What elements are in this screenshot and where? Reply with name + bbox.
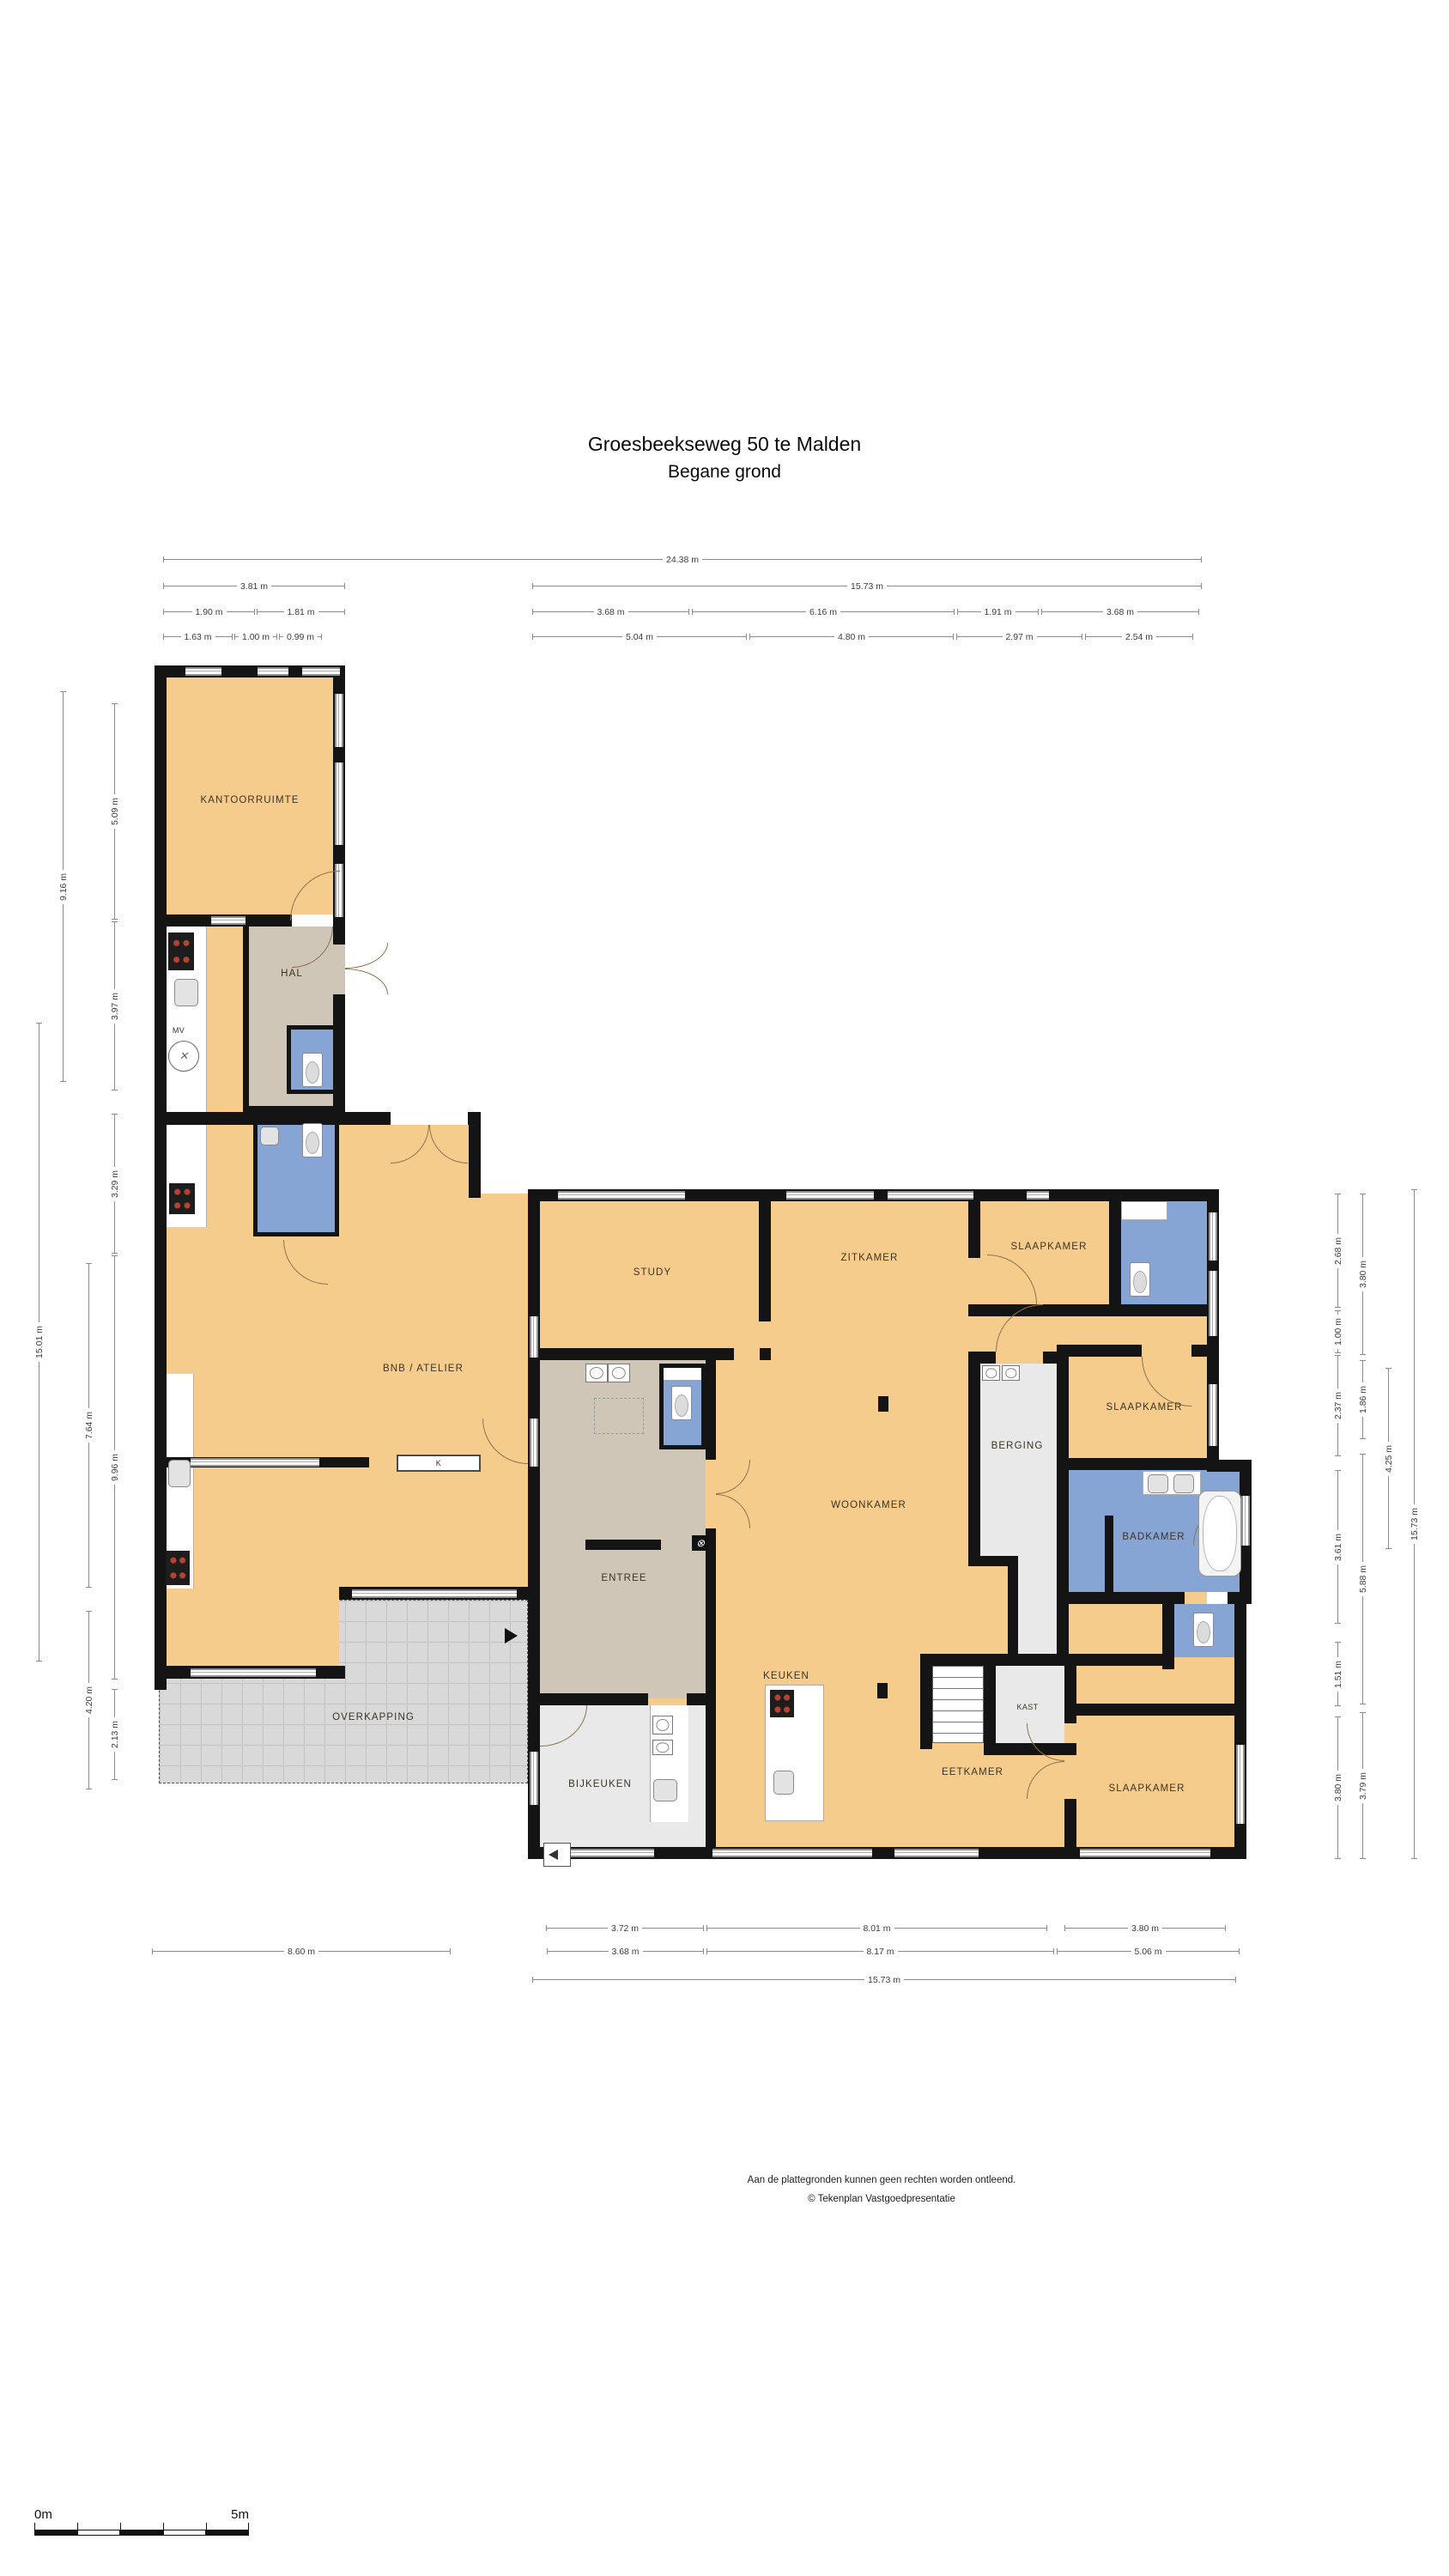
dimension-tick bbox=[112, 1090, 118, 1091]
scale-end-label: 5m bbox=[231, 2507, 249, 2522]
dimension-tick bbox=[692, 609, 693, 615]
dimension-label: 1.51 m bbox=[1333, 1656, 1343, 1691]
room-label-hal: HAL bbox=[281, 969, 303, 979]
kitchen-counter bbox=[163, 927, 206, 1227]
scale-segment bbox=[34, 2530, 77, 2536]
room-label-zitkamer: ZITKAMER bbox=[841, 1253, 899, 1263]
wall bbox=[706, 1360, 716, 1460]
dimension-top_rows-0-0: 24.38 m bbox=[163, 559, 1202, 560]
dryer-icon bbox=[608, 1364, 630, 1382]
sink-icon bbox=[653, 1779, 677, 1801]
wall bbox=[1064, 1666, 1076, 1704]
room-label-bnb-atelier: BNB / ATELIER bbox=[383, 1364, 464, 1374]
dimension-bottom_rows-1-2: 8.17 m bbox=[706, 1951, 1054, 1952]
dimension-tick bbox=[532, 634, 533, 640]
dimension-tick bbox=[954, 609, 955, 615]
dimension-tick bbox=[1360, 1360, 1366, 1361]
dimension-left_cols-2-0: 7.64 m bbox=[88, 1263, 89, 1588]
window bbox=[1080, 1849, 1210, 1857]
room-bnb-lower bbox=[160, 1587, 339, 1666]
scale-tick bbox=[163, 2523, 164, 2530]
dimension-label: 3.80 m bbox=[1358, 1257, 1368, 1291]
window bbox=[530, 1419, 538, 1467]
dimension-tick bbox=[257, 609, 258, 615]
dimension-tick bbox=[60, 691, 66, 692]
wall bbox=[920, 1654, 932, 1749]
window bbox=[560, 1849, 654, 1857]
dimension-left_cols-2-1: 4.20 m bbox=[88, 1611, 89, 1789]
dimension-tick bbox=[1335, 1716, 1341, 1717]
dimension-label: 3.79 m bbox=[1358, 1768, 1368, 1802]
appliance-icon bbox=[652, 1716, 673, 1735]
scale-segment bbox=[206, 2530, 249, 2536]
dimension-tick bbox=[112, 919, 118, 920]
counter-edge bbox=[206, 927, 207, 1227]
scale-tick bbox=[77, 2523, 78, 2530]
disclaimer-line-1: Aan de plattegronden kunnen geen rechten… bbox=[748, 2171, 1016, 2190]
dimension-label: 7.64 m bbox=[84, 1408, 94, 1443]
wall bbox=[706, 1528, 716, 1847]
dimension-left_cols-0-0: 15.01 m bbox=[39, 1023, 39, 1662]
wall bbox=[155, 665, 167, 1690]
wall bbox=[1064, 1799, 1076, 1847]
wall bbox=[760, 1348, 771, 1360]
dimension-right_cols-0-4: 1.51 m bbox=[1337, 1642, 1338, 1706]
dimension-right_cols-0-2: 2.37 m bbox=[1337, 1355, 1338, 1456]
dimension-top_rows-3-4: 4.80 m bbox=[749, 636, 954, 637]
dimension-tick bbox=[112, 1255, 118, 1256]
dimension-bottom_rows-2-0: 15.73 m bbox=[532, 1979, 1236, 1980]
wall bbox=[968, 1201, 980, 1258]
door-arc bbox=[345, 943, 388, 969]
dimension-top_rows-3-0: 1.63 m bbox=[163, 636, 233, 637]
appliance-icon bbox=[982, 1365, 1000, 1381]
dimension-right_cols-0-1: 1.00 m bbox=[1337, 1310, 1338, 1353]
dimension-tick bbox=[1082, 634, 1082, 640]
dimension-tick bbox=[276, 634, 277, 640]
window bbox=[191, 1668, 316, 1677]
pillar bbox=[877, 1683, 888, 1698]
dimension-label: 0.99 m bbox=[283, 632, 318, 642]
dimension-left_cols-3-2: 3.29 m bbox=[114, 1114, 115, 1254]
room-label-slaapkamer-3: SLAAPKAMER bbox=[1109, 1783, 1185, 1794]
dimension-tick bbox=[957, 609, 958, 615]
dimension-tick bbox=[1192, 634, 1193, 640]
dimension-right_cols-2-0: 4.25 m bbox=[1388, 1368, 1389, 1549]
dimension-right_cols-1-1: 1.86 m bbox=[1362, 1360, 1363, 1439]
dimension-label: 5.06 m bbox=[1131, 1947, 1165, 1957]
wall bbox=[759, 1201, 771, 1321]
dimension-tick bbox=[1360, 1858, 1366, 1859]
dimension-label: 24.38 m bbox=[663, 555, 702, 565]
dimension-tick bbox=[956, 634, 957, 640]
dimension-label: 3.97 m bbox=[110, 988, 120, 1023]
room-label-entree: ENTREE bbox=[601, 1573, 646, 1583]
toilet-icon bbox=[302, 1053, 323, 1087]
ventilation-fan-icon bbox=[168, 1041, 199, 1072]
wall bbox=[1064, 1704, 1246, 1716]
ceiling-light-point-icon bbox=[692, 1535, 709, 1551]
dimension-tick bbox=[163, 634, 164, 640]
dimension-label: 1.90 m bbox=[191, 607, 226, 617]
dimension-tick bbox=[1235, 1977, 1236, 1983]
dimension-tick bbox=[1225, 1925, 1226, 1931]
room-bnb-atelier bbox=[160, 1194, 528, 1587]
appliance-icon bbox=[1002, 1365, 1020, 1381]
dimension-tick bbox=[1046, 1925, 1047, 1931]
room-label-woonkamer: WOONKAMER bbox=[831, 1500, 906, 1510]
dimension-tick bbox=[1041, 609, 1042, 615]
dimension-top_rows-2-1: 1.81 m bbox=[257, 611, 345, 612]
wall bbox=[469, 1112, 481, 1198]
washer-icon bbox=[585, 1364, 608, 1382]
dimension-tick bbox=[546, 1925, 547, 1931]
dimension-top_rows-3-5: 2.97 m bbox=[956, 636, 1082, 637]
dimension-label: 4.20 m bbox=[84, 1683, 94, 1717]
scale-bar: 0m 5m bbox=[34, 2507, 249, 2537]
dimension-top_rows-2-4: 1.91 m bbox=[957, 611, 1039, 612]
dimension-right_cols-1-0: 3.80 m bbox=[1362, 1194, 1363, 1355]
dimension-top_rows-3-3: 5.04 m bbox=[532, 636, 747, 637]
dimension-tick bbox=[749, 634, 750, 640]
dimension-tick bbox=[532, 1977, 533, 1983]
room-label-mv: MV bbox=[173, 1026, 185, 1035]
dimension-tick bbox=[1411, 1189, 1417, 1190]
wall bbox=[1057, 1592, 1185, 1604]
scale-segment bbox=[120, 2530, 163, 2536]
dimension-top_rows-3-1: 1.00 m bbox=[234, 636, 277, 637]
dimension-label: 3.72 m bbox=[608, 1923, 642, 1934]
dimension-label: 5.09 m bbox=[110, 794, 120, 829]
dimension-tick bbox=[1057, 1948, 1058, 1954]
wall bbox=[968, 1357, 980, 1556]
window bbox=[185, 667, 221, 676]
cooktop-icon bbox=[169, 1183, 195, 1214]
dimension-tick bbox=[1239, 1948, 1240, 1954]
dimension-tick bbox=[706, 1925, 707, 1931]
dimension-tick bbox=[1335, 1623, 1341, 1624]
window bbox=[1027, 1191, 1049, 1200]
appliance-icon bbox=[652, 1740, 673, 1755]
dimension-label: 8.60 m bbox=[284, 1947, 318, 1957]
dimension-label: 3.81 m bbox=[237, 581, 271, 592]
window bbox=[1209, 1212, 1217, 1261]
wall bbox=[1008, 1556, 1018, 1666]
dimension-tick bbox=[36, 1661, 42, 1662]
wall bbox=[243, 927, 249, 1112]
dimension-tick bbox=[1335, 1352, 1341, 1353]
window bbox=[786, 1191, 874, 1200]
dimension-tick bbox=[86, 1789, 92, 1789]
dimension-tick bbox=[1201, 583, 1202, 589]
wall bbox=[968, 1304, 1219, 1316]
floorplan-page: Groesbeekseweg 50 te Malden Begane grond bbox=[0, 0, 1449, 2576]
disclaimer-line-2: © Tekenplan Vastgoedpresentatie bbox=[748, 2190, 1016, 2208]
dimension-tick bbox=[1360, 1712, 1366, 1713]
dimension-tick bbox=[232, 634, 233, 640]
window bbox=[335, 694, 343, 747]
dimension-bottom_rows-1-0: 8.60 m bbox=[152, 1951, 451, 1952]
shower-icon bbox=[260, 1127, 279, 1145]
dimension-top_rows-1-0: 3.81 m bbox=[163, 586, 345, 586]
counter-edge bbox=[193, 1374, 194, 1589]
dimension-tick bbox=[1053, 1948, 1054, 1954]
wall bbox=[1228, 1592, 1252, 1604]
dimension-label: 2.97 m bbox=[1002, 632, 1036, 642]
dimension-tick bbox=[60, 1081, 66, 1082]
scale-segment bbox=[77, 2530, 120, 2536]
cooktop-icon bbox=[166, 1551, 190, 1585]
dimension-label: 3.68 m bbox=[1103, 607, 1137, 617]
sink-icon bbox=[168, 1460, 191, 1487]
dimension-label: 5.04 m bbox=[622, 632, 657, 642]
dimension-label: 8.01 m bbox=[859, 1923, 894, 1934]
scale-tick bbox=[206, 2523, 207, 2530]
wall bbox=[528, 1348, 734, 1360]
dimension-label: 1.00 m bbox=[1333, 1315, 1343, 1349]
dimension-label: 6.16 m bbox=[806, 607, 840, 617]
dimension-tick bbox=[1360, 1454, 1366, 1455]
room-label-keuken: KEUKEN bbox=[763, 1671, 809, 1681]
dimension-tick bbox=[703, 1948, 704, 1954]
wall bbox=[1064, 1716, 1076, 1723]
window bbox=[712, 1849, 872, 1857]
dimension-tick bbox=[112, 1114, 118, 1115]
dimension-tick bbox=[112, 921, 118, 922]
dimension-tick bbox=[1201, 556, 1202, 562]
dimension-tick bbox=[112, 1679, 118, 1680]
dimension-top_rows-2-3: 6.16 m bbox=[692, 611, 955, 612]
window bbox=[530, 1316, 538, 1358]
dimension-tick bbox=[1360, 1438, 1366, 1439]
dimension-tick bbox=[1360, 1194, 1366, 1194]
title-block: Groesbeekseweg 50 te Malden Begane grond bbox=[0, 433, 1449, 483]
scale-segment bbox=[163, 2530, 206, 2536]
door-arc bbox=[345, 969, 388, 994]
window bbox=[894, 1849, 979, 1857]
room-berging bbox=[980, 1364, 1057, 1556]
wall bbox=[1057, 1345, 1142, 1357]
dimension-tick bbox=[1335, 1310, 1341, 1311]
dimension-tick bbox=[112, 1779, 118, 1780]
page-title: Groesbeekseweg 50 te Malden bbox=[0, 433, 1449, 456]
dimension-label: 3.29 m bbox=[110, 1166, 120, 1200]
dimension-label: 3.80 m bbox=[1333, 1771, 1343, 1805]
scale-tick bbox=[34, 2523, 35, 2530]
room-label-eetkamer: EETKAMER bbox=[942, 1767, 1003, 1777]
dimension-top_rows-2-2: 3.68 m bbox=[532, 611, 689, 612]
dimension-tick bbox=[163, 583, 164, 589]
room-label-kast: KAST bbox=[1016, 1703, 1038, 1711]
wall bbox=[920, 1654, 1162, 1666]
window bbox=[302, 667, 340, 676]
room-label-kantoorruimte: KANTOORRUIMTE bbox=[200, 795, 299, 805]
dimension-label: 1.63 m bbox=[180, 632, 215, 642]
dimension-tick bbox=[746, 634, 747, 640]
toilet-icon bbox=[1193, 1613, 1214, 1647]
dimension-bottom_rows-0-0: 3.72 m bbox=[546, 1928, 704, 1929]
dimension-tick bbox=[1335, 1705, 1341, 1706]
dimension-label: 3.61 m bbox=[1333, 1529, 1343, 1564]
scale-tick bbox=[120, 2523, 121, 2530]
dimension-right_cols-0-3: 3.61 m bbox=[1337, 1470, 1338, 1624]
dimension-top_rows-2-5: 3.68 m bbox=[1041, 611, 1199, 612]
vanity-unit bbox=[1121, 1201, 1167, 1220]
sink-icon bbox=[773, 1771, 794, 1795]
room-slaapkamer-3 bbox=[1207, 1716, 1234, 1847]
sink-icon bbox=[1173, 1474, 1194, 1493]
dimension-tick bbox=[532, 609, 533, 615]
disclaimer: Aan de plattegronden kunnen geen rechten… bbox=[748, 2171, 1016, 2209]
dimension-tick bbox=[1038, 609, 1039, 615]
cooktop-icon bbox=[770, 1690, 794, 1717]
dimension-label: 4.25 m bbox=[1384, 1441, 1394, 1475]
dimension-tick bbox=[1360, 1354, 1366, 1355]
window bbox=[191, 1458, 319, 1467]
dimension-tick bbox=[1360, 1704, 1366, 1704]
dimension-tick bbox=[254, 609, 255, 615]
dimension-tick bbox=[279, 634, 280, 640]
dimension-tick bbox=[1085, 634, 1086, 640]
dimension-bottom_rows-1-1: 3.68 m bbox=[547, 1951, 704, 1952]
dimension-tick bbox=[1385, 1548, 1391, 1549]
pillar bbox=[878, 1396, 888, 1412]
dimension-tick bbox=[1064, 1925, 1065, 1931]
dimension-label: 1.86 m bbox=[1358, 1382, 1368, 1417]
window bbox=[1209, 1271, 1217, 1336]
bathtub-icon bbox=[1198, 1491, 1241, 1577]
dimension-tick bbox=[1335, 1470, 1341, 1471]
room-label-slaapkamer-2: SLAAPKAMER bbox=[1106, 1402, 1183, 1413]
room-label-slaapkamer-1: SLAAPKAMER bbox=[1011, 1242, 1088, 1252]
window bbox=[1209, 1384, 1217, 1446]
dimension-label: 15.73 m bbox=[847, 581, 887, 592]
window bbox=[258, 667, 288, 676]
wc-sink bbox=[664, 1368, 701, 1380]
dimension-tick bbox=[112, 1689, 118, 1690]
dimension-label: 2.68 m bbox=[1333, 1233, 1343, 1267]
dimension-top_rows-2-0: 1.90 m bbox=[163, 611, 255, 612]
wall bbox=[687, 1693, 716, 1705]
dimension-left_cols-1-0: 9.16 m bbox=[63, 691, 64, 1082]
window bbox=[352, 1589, 517, 1598]
dimension-tick bbox=[86, 1263, 92, 1264]
dimension-bottom_rows-1-3: 5.06 m bbox=[1057, 1951, 1240, 1952]
dimension-right_cols-3-0: 15.73 m bbox=[1414, 1189, 1415, 1859]
dimension-tick bbox=[163, 609, 164, 615]
dimension-tick bbox=[1198, 609, 1199, 615]
wall bbox=[968, 1352, 996, 1364]
dimension-tick bbox=[112, 703, 118, 704]
dimension-top_rows-3-6: 2.54 m bbox=[1085, 636, 1193, 637]
dimension-label: 3.80 m bbox=[1128, 1923, 1162, 1934]
wall bbox=[1109, 1201, 1121, 1304]
dimension-label: 15.73 m bbox=[1410, 1504, 1420, 1544]
dimension-tick bbox=[1335, 1858, 1341, 1859]
scale-start-label: 0m bbox=[34, 2507, 52, 2522]
room-label-overkapping: OVERKAPPING bbox=[332, 1712, 415, 1722]
sink-icon bbox=[1148, 1474, 1168, 1493]
dimension-label: 15.01 m bbox=[34, 1322, 45, 1362]
wall bbox=[333, 994, 345, 1124]
dimension-tick bbox=[1385, 1368, 1391, 1369]
dimension-label: 2.13 m bbox=[110, 1717, 120, 1752]
dimension-tick bbox=[706, 1948, 707, 1954]
window bbox=[335, 762, 343, 845]
staircase bbox=[932, 1666, 984, 1743]
dimension-top_rows-1-1: 15.73 m bbox=[532, 586, 1202, 586]
reserved-area-outline bbox=[594, 1398, 644, 1434]
dimension-bottom_rows-0-1: 8.01 m bbox=[706, 1928, 1047, 1929]
dimension-label: 3.68 m bbox=[608, 1947, 642, 1957]
dimension-tick bbox=[344, 609, 345, 615]
wall bbox=[585, 1540, 661, 1550]
dimension-tick bbox=[1335, 1642, 1341, 1643]
wall bbox=[155, 1112, 391, 1125]
window bbox=[888, 1191, 973, 1200]
dimension-tick bbox=[688, 609, 689, 615]
dimension-label: 1.91 m bbox=[980, 607, 1015, 617]
wall bbox=[984, 1666, 996, 1743]
dimension-tick bbox=[450, 1948, 451, 1954]
cooktop-icon bbox=[168, 933, 194, 970]
exit-door-icon bbox=[543, 1843, 571, 1867]
window bbox=[1241, 1496, 1250, 1546]
toilet-icon bbox=[671, 1386, 692, 1420]
dimension-top_rows-3-2: 0.99 m bbox=[279, 636, 322, 637]
window bbox=[1236, 1745, 1245, 1824]
dimension-left_cols-3-4: 2.13 m bbox=[114, 1689, 115, 1780]
room-label-badkamer: BADKAMER bbox=[1122, 1532, 1185, 1542]
dimension-label: 2.54 m bbox=[1122, 632, 1156, 642]
dimension-right_cols-1-3: 3.79 m bbox=[1362, 1712, 1363, 1859]
dimension-label: 8.17 m bbox=[863, 1947, 897, 1957]
window bbox=[530, 1752, 538, 1805]
toilet-icon bbox=[302, 1123, 323, 1157]
dimension-tick bbox=[1335, 1307, 1341, 1308]
dimension-label: 3.68 m bbox=[593, 607, 627, 617]
room-label-k: K bbox=[436, 1459, 441, 1467]
room-label-berging: BERGING bbox=[991, 1441, 1044, 1451]
entrance-arrow-icon bbox=[505, 1628, 518, 1643]
dimension-tick bbox=[1335, 1455, 1341, 1456]
dimension-tick bbox=[953, 634, 954, 640]
wall bbox=[1191, 1345, 1219, 1357]
wall bbox=[1057, 1458, 1219, 1470]
wall bbox=[1162, 1604, 1174, 1669]
dimension-tick bbox=[1335, 1355, 1341, 1356]
dimension-tick bbox=[86, 1611, 92, 1612]
dimension-tick bbox=[547, 1948, 548, 1954]
scale-tick bbox=[248, 2523, 249, 2530]
dimension-label: 5.88 m bbox=[1358, 1562, 1368, 1596]
room-label-study: STUDY bbox=[634, 1267, 671, 1278]
dimension-tick bbox=[234, 634, 235, 640]
dimension-tick bbox=[321, 634, 322, 640]
dimension-label: 2.37 m bbox=[1333, 1388, 1343, 1423]
dimension-left_cols-3-3: 9.96 m bbox=[114, 1255, 115, 1680]
sink-icon bbox=[174, 979, 198, 1006]
dimension-right_cols-0-0: 2.68 m bbox=[1337, 1194, 1338, 1308]
dimension-label: 1.81 m bbox=[283, 607, 318, 617]
dimension-tick bbox=[86, 1587, 92, 1588]
dimension-tick bbox=[532, 583, 533, 589]
dimension-tick bbox=[1335, 1194, 1341, 1194]
room-berging-lower bbox=[1018, 1556, 1057, 1666]
dimension-tick bbox=[112, 1253, 118, 1254]
dimension-label: 9.16 m bbox=[58, 869, 69, 903]
dimension-tick bbox=[152, 1948, 153, 1954]
